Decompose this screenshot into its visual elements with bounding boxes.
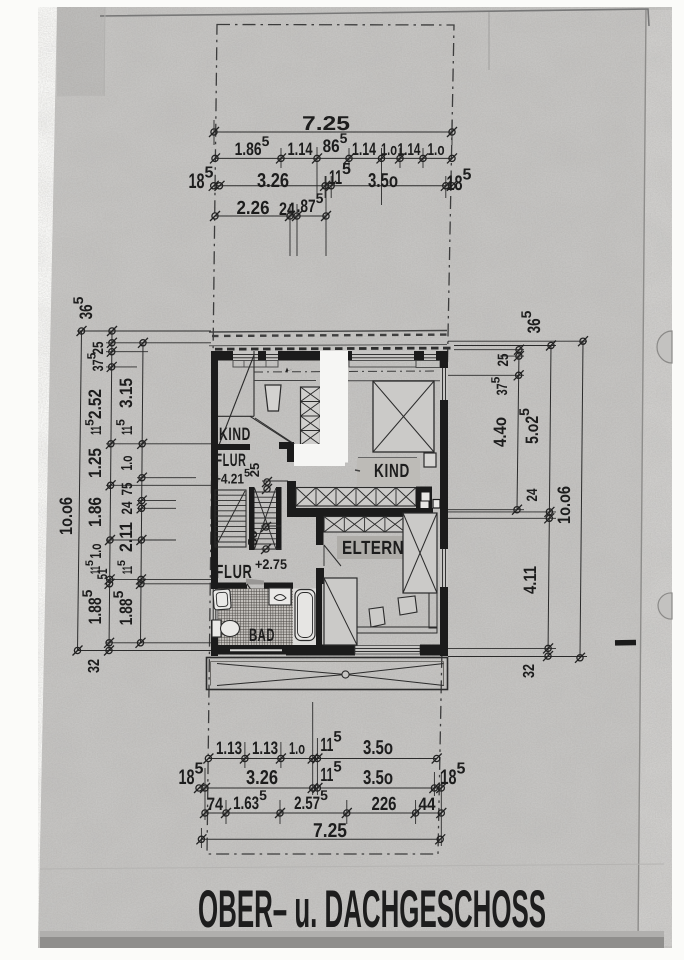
svg-text:24: 24 [279,199,295,219]
svg-text:1.o: 1.o [428,140,445,159]
svg-text:24: 24 [119,501,136,515]
svg-text:2.11: 2.11 [116,522,136,552]
svg-text:5o: 5o [245,530,260,545]
svg-text:32: 32 [521,664,538,678]
svg-text:3.5o: 3.5o [363,767,393,789]
svg-text:7.25: 7.25 [313,820,347,842]
svg-text:3.5o: 3.5o [363,737,393,759]
svg-text:KIND: KIND [219,424,251,444]
svg-text:44: 44 [419,794,436,814]
svg-text:74: 74 [207,794,223,814]
svg-text:25: 25 [90,342,107,355]
svg-text:4.4o: 4.4o [490,417,510,447]
svg-text:OBER– u. DACHGESCHOSS: OBER– u. DACHGESCHOSS [198,880,546,939]
svg-text:226: 226 [372,794,397,815]
svg-text:2.52: 2.52 [85,389,105,419]
svg-text:3.26: 3.26 [257,170,289,192]
svg-text:1.o: 1.o [289,739,305,758]
svg-text:1.14: 1.14 [288,139,313,159]
svg-text:3.5o: 3.5o [368,170,398,192]
svg-text:32: 32 [86,659,103,673]
svg-text:3.15: 3.15 [116,378,136,408]
svg-text:1o.o6: 1o.o6 [56,497,76,535]
svg-text:KIND: KIND [374,461,410,482]
svg-text:1.o: 1.o [119,455,136,470]
svg-text:+2.75: +2.75 [255,556,287,572]
svg-text:ELTERN: ELTERN [342,538,404,559]
svg-text:24: 24 [524,488,541,502]
svg-text:1o.o6: 1o.o6 [554,486,574,524]
svg-text:2.26: 2.26 [237,198,270,219]
svg-text:51: 51 [94,568,110,579]
svg-text:1.13: 1.13 [216,738,242,758]
svg-text:4.11: 4.11 [520,566,540,594]
svg-text:1.o: 1.o [381,140,397,159]
svg-text:1.13: 1.13 [252,738,278,758]
svg-text:3.26: 3.26 [246,767,278,789]
svg-text:25: 25 [247,463,262,477]
svg-text:FLUR: FLUR [216,450,247,470]
svg-text:1.25: 1.25 [85,448,105,478]
svg-text:25: 25 [495,354,512,367]
svg-text:75: 75 [119,483,136,496]
svg-text:1.o: 1.o [88,543,105,558]
svg-text:1.14: 1.14 [398,140,421,159]
svg-text:1.86: 1.86 [85,497,105,527]
svg-text:1.14: 1.14 [352,139,376,159]
svg-text:BAD: BAD [249,625,275,645]
